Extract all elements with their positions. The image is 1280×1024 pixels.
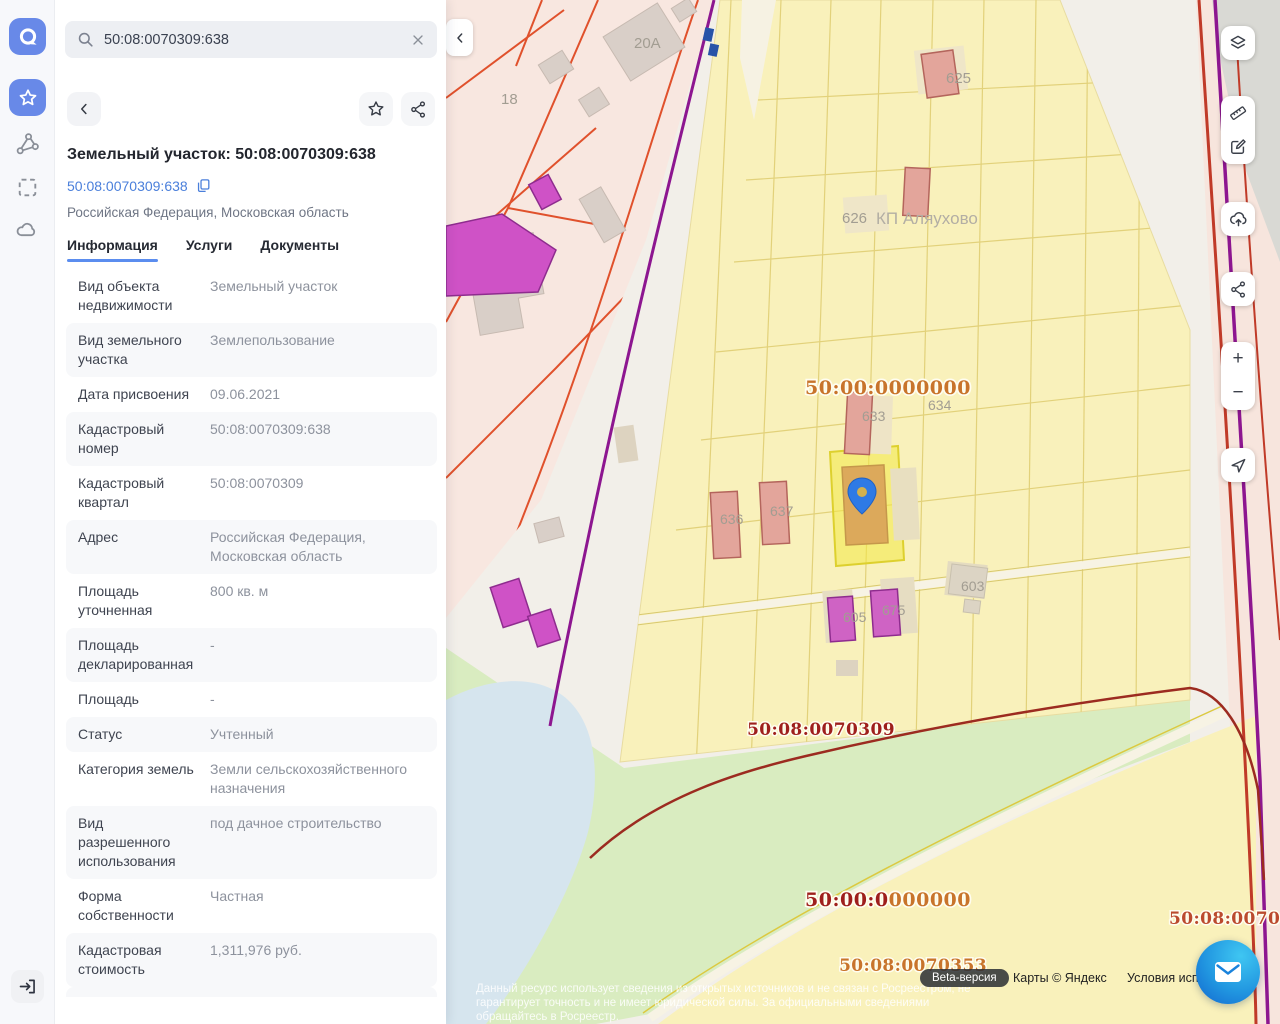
row-value: под дачное строительство [210,814,425,871]
parcel-label-625: 625 [946,70,971,87]
cloud-upload-icon [1228,209,1249,230]
row-value: Учтенный [210,725,425,744]
login-button[interactable] [11,970,44,1003]
parcel-label-605: 605 [843,609,867,625]
star-icon [17,87,39,109]
search-bar[interactable] [65,21,437,58]
table-row: Кадастровый квартал50:08:0070309 [66,466,437,520]
table-row: Площадь уточненная800 кв. м [66,574,437,628]
row-label: Площадь декларированная [78,636,196,674]
quarter-label-0070309: 50:08:0070309 [747,720,895,740]
quarter-label-bottom: 50:00:0000000 [805,889,971,911]
parcel-label-20a: 20A [634,35,661,52]
layers-button[interactable] [1221,26,1255,60]
sidebar-item-favorites[interactable] [9,79,46,116]
table-row: Вид объекта недвижимостиЗемельный участо… [66,269,437,323]
draw-edit-button[interactable] [1221,130,1255,164]
parcel-label-637: 637 [770,503,794,519]
row-value: 50:08:0070309 [210,474,425,512]
map-canvas[interactable]: 18 20A 625 626 633 634 636 637 603 605 6… [446,0,1280,1024]
parcel-label-18: 18 [501,91,518,108]
locate-button[interactable] [1221,448,1255,482]
share-icon [409,100,428,119]
table-row: Вид земельного участкаЗемлепользование [66,323,437,377]
row-label: Площадь [78,690,196,709]
row-label: Адрес [78,528,196,566]
app-window: Земельный участок: 50:08:0070309:638 50:… [0,0,1280,1024]
parcel-label-634: 634 [928,397,952,413]
row-value: 1,311,976 руб. [210,941,425,979]
row-label: Статус [78,725,196,744]
table-row: Кадастровый номер50:08:0070309:638 [66,412,437,466]
page-title: Земельный участок: 50:08:0070309:638 [67,146,434,164]
polygon-tool-icon [15,132,40,157]
search-input[interactable] [104,32,410,48]
select-area-icon [15,175,40,200]
share-icon [1229,280,1248,299]
layers-card [1221,26,1255,60]
table-row: Вид разрешенного использованияпод дачное… [66,806,437,879]
share-object-button[interactable] [401,92,435,126]
maps-copyright[interactable]: Карты © Яндекс [1013,971,1107,985]
object-region: Российская Федерация, Московская область [67,205,434,220]
object-toolbar [67,92,435,126]
edit-icon [1228,137,1248,157]
parcel-label-633: 633 [862,408,886,424]
table-row: Дата присвоения09.06.2021 [66,377,437,412]
row-label: Кадастровый номер [78,420,196,458]
locate-arrow-icon [1228,455,1248,475]
zoom-out-button[interactable]: − [1221,376,1255,410]
zoom-card: + − [1221,342,1255,410]
ruler-icon [1228,103,1248,123]
row-label: Вид разрешенного использования [78,814,196,871]
row-label: Дата присвоения [78,385,196,404]
quarter-label-east: 50:08:00703 [1169,909,1280,929]
row-value: Земли сельскохозяйственного назначения [210,760,425,798]
tab-services[interactable]: Услуги [186,237,233,262]
table-row-partial [66,987,437,997]
zoom-in-button[interactable]: + [1221,342,1255,376]
search-icon [76,30,95,49]
tab-information[interactable]: Информация [67,237,158,262]
quarter-label-center: 50:00:0000000 [805,377,971,399]
tab-bar: Информация Услуги Документы [67,237,434,262]
envelope-icon [1214,961,1242,983]
parcel-label-636: 636 [720,511,744,527]
star-outline-icon [366,99,386,119]
table-row: Категория земельЗемли сельскохозяйственн… [66,752,437,806]
share-card [1221,272,1255,306]
parcel-label-675: 675 [882,602,906,618]
row-value: Земельный участок [210,277,425,315]
row-value: 09.06.2021 [210,385,425,404]
table-row: СтатусУчтенный [66,717,437,752]
row-value: Российская Федерация, Московская область [210,528,425,566]
sidebar-item-cloud[interactable] [9,212,46,249]
app-logo-icon [16,25,40,49]
measure-button[interactable] [1221,96,1255,130]
chevron-left-icon [452,30,468,46]
cloud-icon [15,218,40,243]
layers-icon [1228,33,1248,53]
row-label: Кадастровый квартал [78,474,196,512]
upload-button[interactable] [1221,202,1255,236]
cadastral-number-text: 50:08:0070309:638 [67,178,188,194]
chat-button[interactable] [1196,940,1260,1004]
clear-search-button[interactable] [410,32,426,48]
tab-documents[interactable]: Документы [260,237,339,262]
parcel-label-626: 626 [842,210,867,227]
login-icon [17,976,38,997]
row-label: Вид объекта недвижимости [78,277,196,315]
tools-card [1221,96,1255,164]
map-container: 18 20A 625 626 633 634 636 637 603 605 6… [446,0,1280,1024]
row-value: 50:08:0070309:638 [210,420,425,458]
favorite-object-button[interactable] [359,92,393,126]
table-row: Площадь декларированная- [66,628,437,682]
row-label: Вид земельного участка [78,331,196,369]
row-value: Частная [210,887,425,925]
row-label: Категория земель [78,760,196,798]
beta-badge: Beta-версия [920,969,1009,987]
row-label: Форма собственности [78,887,196,925]
row-value: - [210,690,425,709]
collapse-panel-button[interactable] [446,19,473,56]
share-map-button[interactable] [1221,272,1255,306]
table-row: Кадастровая стоимость1,311,976 руб. [66,933,437,987]
app-logo[interactable] [9,18,46,55]
attributes-table: Вид объекта недвижимостиЗемельный участо… [66,269,437,997]
table-row: АдресРоссийская Федерация, Московская об… [66,520,437,574]
copy-icon[interactable] [195,177,212,194]
locate-card [1221,448,1255,482]
parcel-label-603: 603 [961,578,985,594]
table-row: Площадь- [66,682,437,717]
map-disclaimer: Данный ресурс использует сведения из отк… [476,982,1056,1024]
village-label: КП Аляухово [876,209,978,228]
sidebar-item-polygon-tool[interactable] [9,126,46,163]
row-value: 800 кв. м [210,582,425,620]
row-label: Площадь уточненная [78,582,196,620]
back-button[interactable] [67,92,101,126]
row-value: - [210,636,425,674]
left-toolbar [0,0,55,1024]
sidebar-item-select-area[interactable] [9,169,46,206]
chevron-left-icon [75,100,93,118]
row-label: Кадастровая стоимость [78,941,196,979]
detail-panel: Земельный участок: 50:08:0070309:638 50:… [55,0,446,1024]
upload-card [1221,202,1255,236]
row-value: Землепользование [210,331,425,369]
table-row: Форма собственностиЧастная [66,879,437,933]
cadastral-number-link[interactable]: 50:08:0070309:638 [67,177,434,194]
